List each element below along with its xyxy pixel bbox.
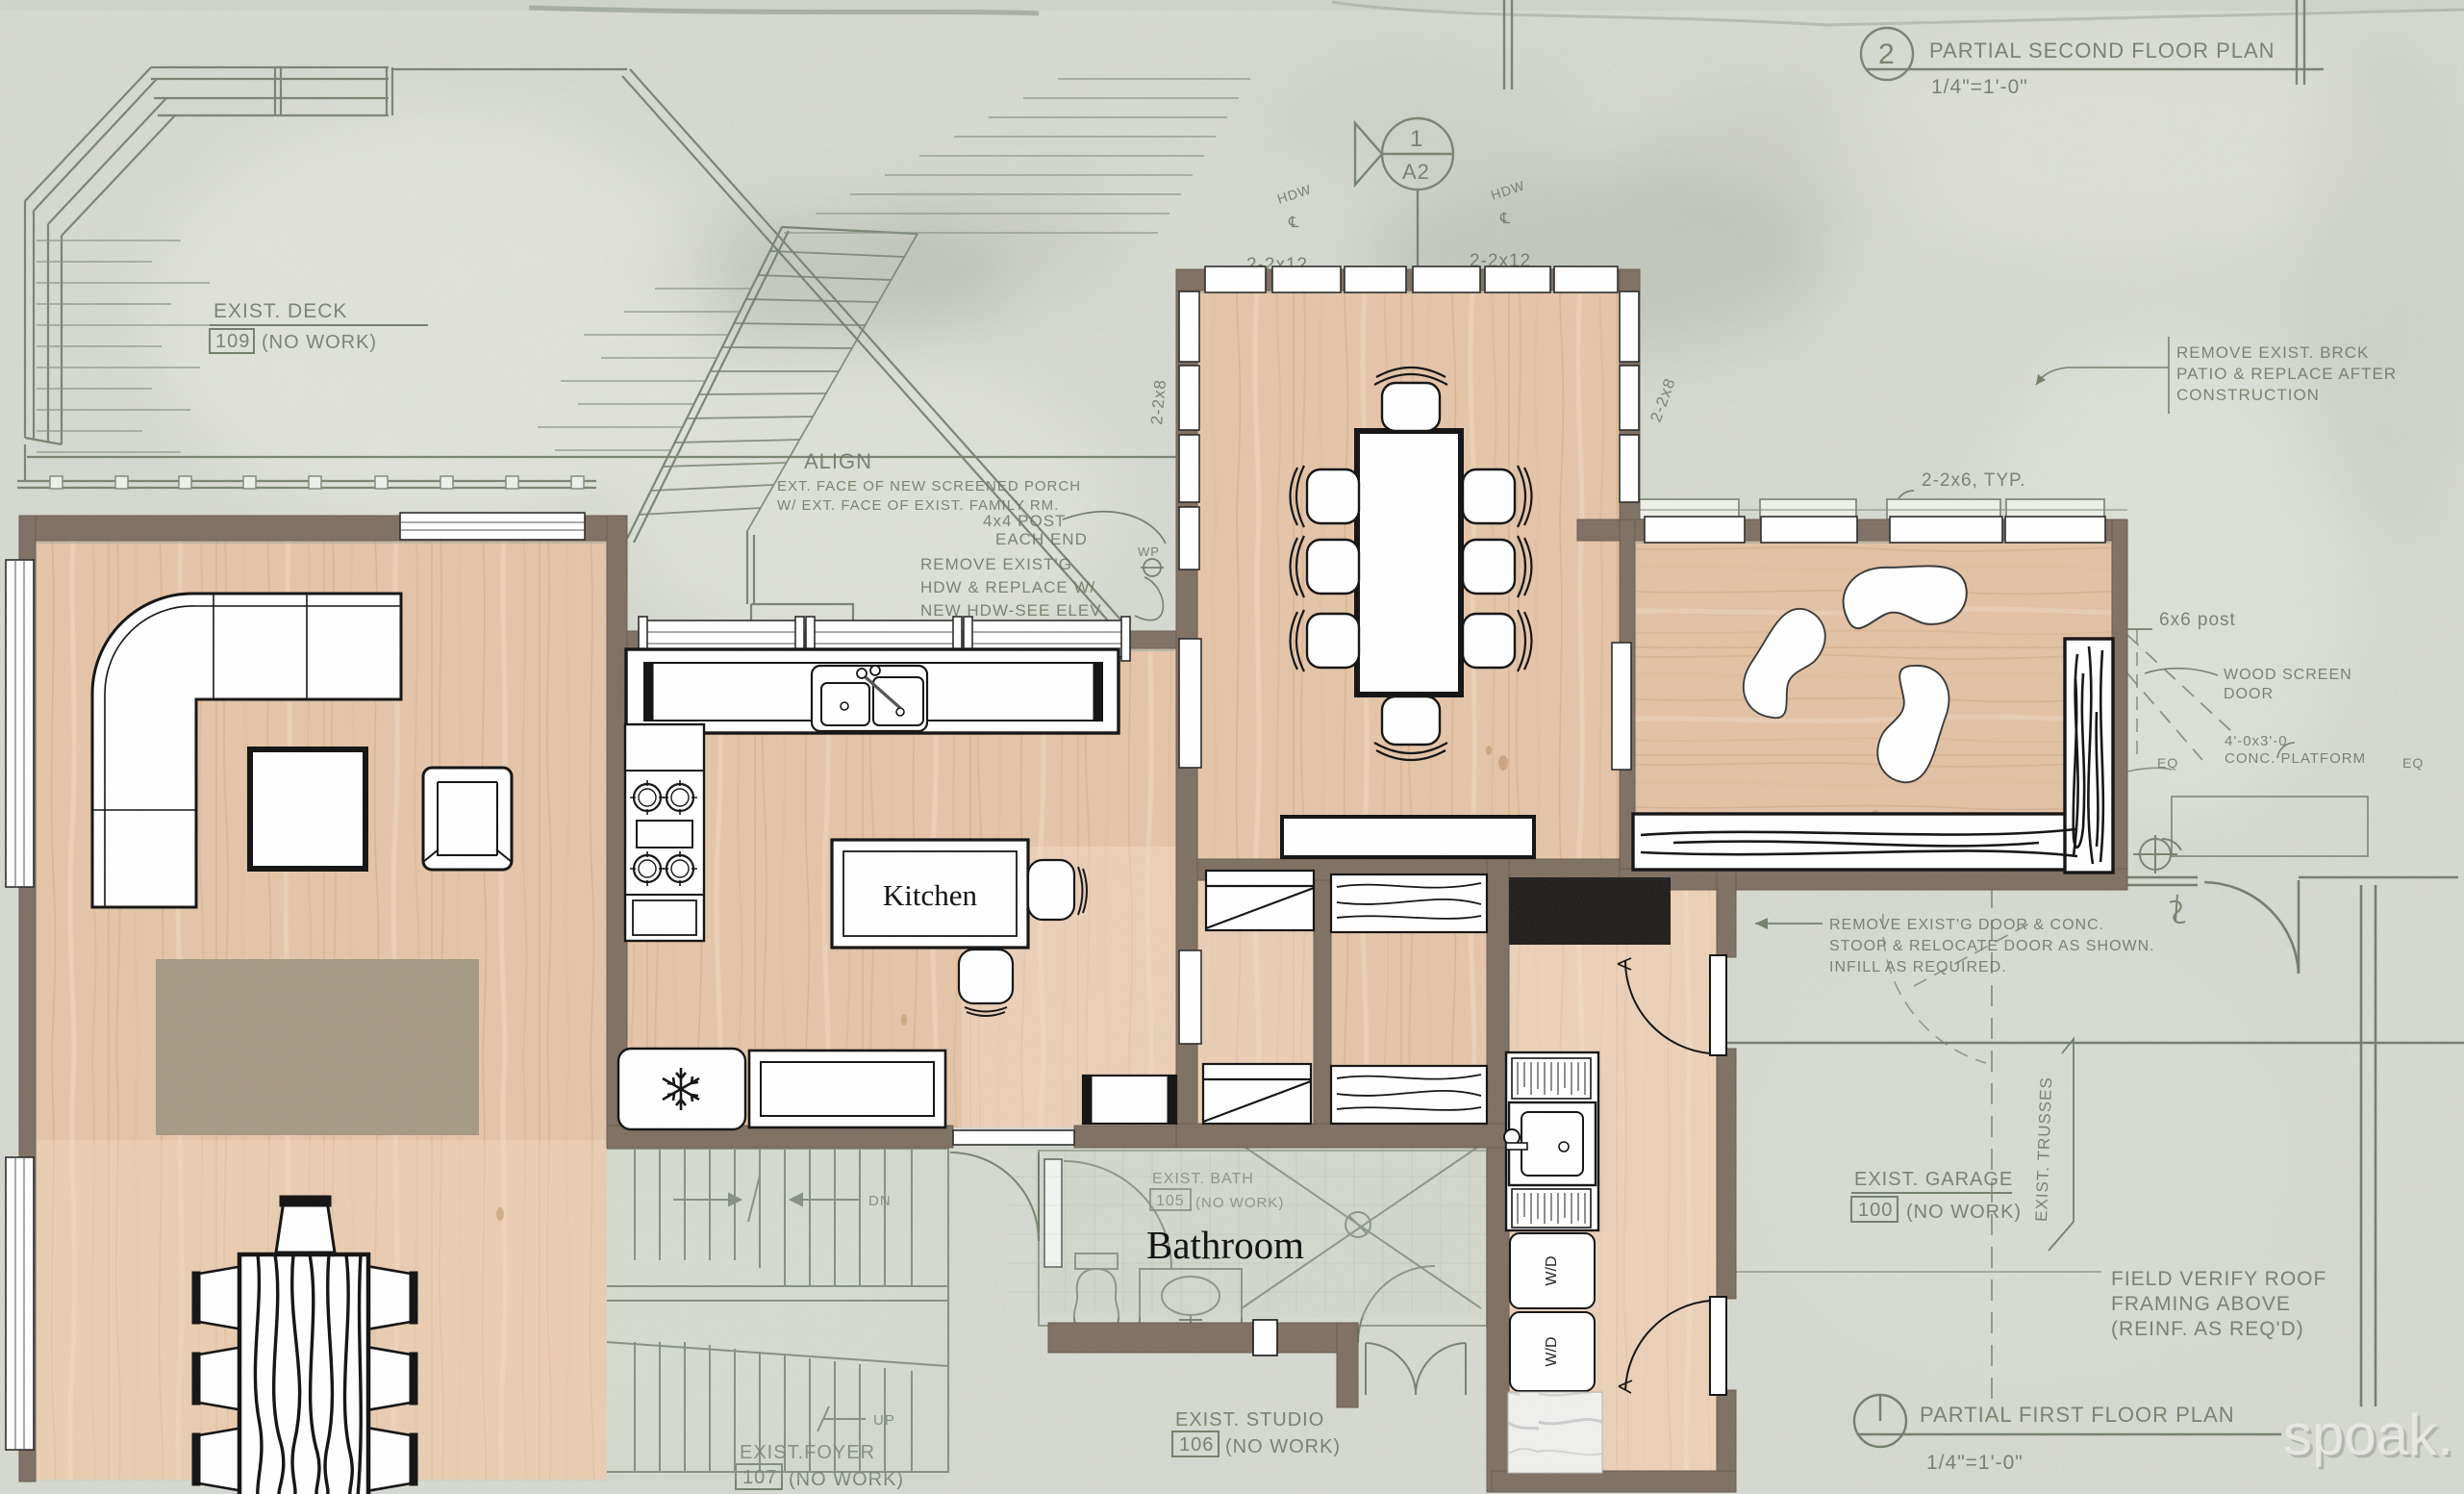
- svg-text:spoak.: spoak.: [2283, 1403, 2453, 1467]
